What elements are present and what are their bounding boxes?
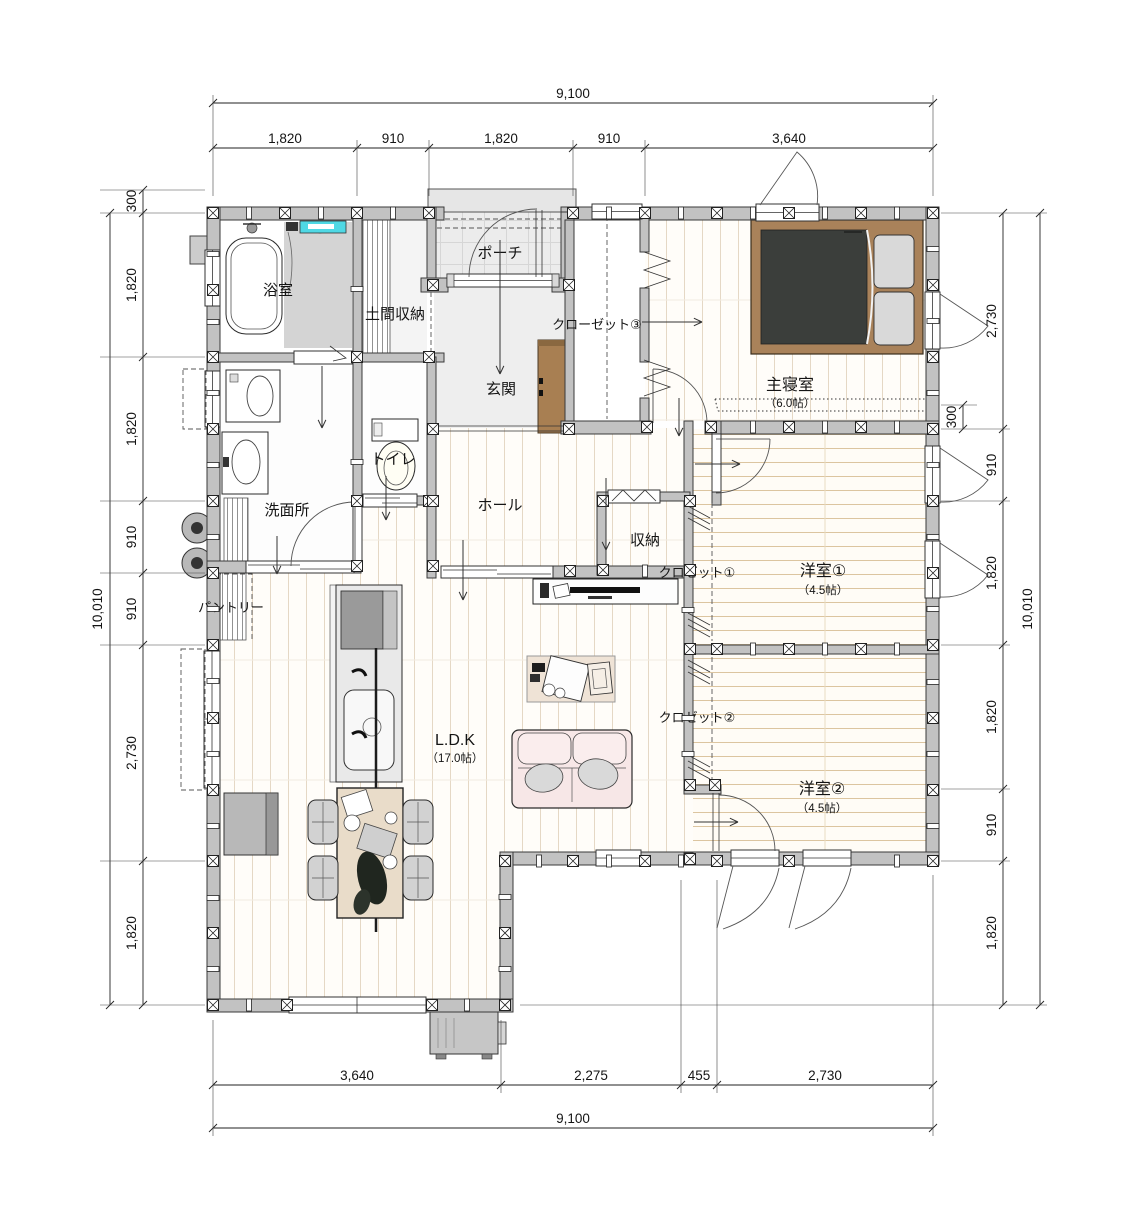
dim-top-seg-4: 3,640 [772, 131, 806, 146]
dim-bottom-seg-3: 2,730 [808, 1068, 842, 1083]
shutter-box-dashed [181, 649, 205, 790]
dim-top-seg-1: 910 [382, 131, 405, 146]
window-closet3-north [592, 204, 642, 219]
bath-floor-right [284, 222, 352, 348]
dim-right-seg-4: 910 [984, 814, 999, 837]
outdoor-ac-unit [430, 1012, 506, 1059]
water-heater-fan [191, 522, 203, 534]
dim-left-seg-4: 2,730 [124, 736, 139, 770]
washroom-sliding-door [246, 561, 354, 573]
dim-right-offset: 300 [944, 406, 959, 429]
dim-right-seg-1: 910 [984, 454, 999, 477]
room-label-genkan: 玄関 [486, 381, 516, 398]
dim-right-seg-0: 2,730 [984, 304, 999, 338]
room-label-closet1: クロゼット① [659, 565, 736, 580]
dim-top-seg-0: 1,820 [268, 131, 302, 146]
western1-floor [693, 429, 926, 645]
window-ldk-south [289, 997, 426, 1013]
entrance-canopy [428, 189, 576, 212]
shoe-cabinet [538, 340, 568, 433]
room-label-western2: 洋室② [799, 780, 845, 798]
room-label-doma-storage: 土間収納 [365, 306, 425, 323]
kitchen-counter [330, 585, 402, 782]
dim-top-total: 9,100 [556, 86, 590, 101]
tv-board [533, 579, 678, 604]
room-label-master-bedroom: 主寝室 [766, 375, 814, 394]
room-label-ldk: L.D.K [435, 732, 475, 749]
window-ldk-southeast [596, 850, 641, 866]
washing-machine [226, 370, 280, 422]
sofa [512, 730, 632, 808]
dim-top-seg-2: 1,820 [484, 131, 518, 146]
dining-table [337, 788, 403, 918]
storage-bifold-door [608, 490, 660, 503]
dim-left-seg-5: 1,820 [124, 916, 139, 950]
dim-right-seg-3: 1,820 [984, 700, 999, 734]
dim-left-total: 10,010 [90, 588, 105, 629]
dim-right-total: 10,010 [1020, 588, 1035, 629]
floor-plan-drawing: 浴室 土間収納 ポーチ 玄関 クローゼット③ 主寝室 （6.0帖） トイレ 洗面… [0, 0, 1146, 1218]
double-bed [751, 220, 923, 354]
room-label-bath: 浴室 [263, 282, 293, 299]
dim-right-seg-5: 1,820 [984, 916, 999, 950]
stove [341, 591, 383, 649]
room-label-toilet: トイレ [370, 451, 415, 468]
plate-2 [385, 812, 397, 824]
dim-top-seg-3: 910 [598, 131, 621, 146]
plate [344, 815, 360, 831]
toilet-sliding-door [363, 494, 417, 507]
window-bath-west [205, 250, 220, 306]
refrigerator [224, 793, 278, 855]
washbasin-vanity [222, 432, 268, 494]
dim-bottom-seg-0: 3,640 [340, 1068, 374, 1083]
bath-mixer [286, 222, 298, 231]
dim-left-seg-2: 910 [124, 526, 139, 549]
window-washroom-west [205, 371, 220, 427]
window-western1-east-a [925, 446, 940, 503]
magazine-tray [587, 662, 612, 695]
dim-left-seg-1: 1,820 [124, 412, 139, 446]
linen-shelf [224, 498, 248, 564]
window-western2-south-b [803, 850, 851, 866]
room-label-storage: 収納 [630, 532, 660, 549]
room-size-western2: （4.5帖） [797, 801, 848, 815]
room-label-western1: 洋室① [800, 562, 846, 580]
doma-shelf [363, 214, 390, 354]
room-label-hall: ホール [477, 497, 522, 514]
shutter-box-dashed-2 [183, 369, 206, 429]
bath-counter-inner [308, 224, 334, 229]
dim-bottom-seg-1: 2,275 [574, 1068, 608, 1083]
window-western2-south-a [731, 850, 779, 866]
hall-passage-floor [362, 505, 436, 568]
room-size-master-bedroom: （6.0帖） [765, 396, 816, 410]
room-label-closet2: クロゼット② [659, 710, 736, 725]
rug [527, 656, 615, 702]
water-heater-fan-2 [191, 557, 203, 569]
dim-left-seg-0: 1,820 [124, 268, 139, 302]
dim-left-offset: 300 [124, 190, 139, 213]
room-size-ldk: （17.0帖） [427, 751, 484, 765]
dim-bottom-seg-2: 455 [688, 1068, 711, 1083]
dim-right-seg-2: 1,820 [984, 556, 999, 590]
room-label-washroom: 洗面所 [264, 502, 309, 519]
kitchen-sink [344, 690, 394, 770]
dim-left-seg-3: 910 [124, 598, 139, 621]
room-label-closet3: クローゼット③ [552, 317, 642, 332]
dim-bottom-total: 9,100 [556, 1111, 590, 1126]
hall-sliding-door [441, 566, 553, 578]
tv [570, 587, 640, 593]
room-size-western1: （4.5帖） [798, 583, 849, 597]
